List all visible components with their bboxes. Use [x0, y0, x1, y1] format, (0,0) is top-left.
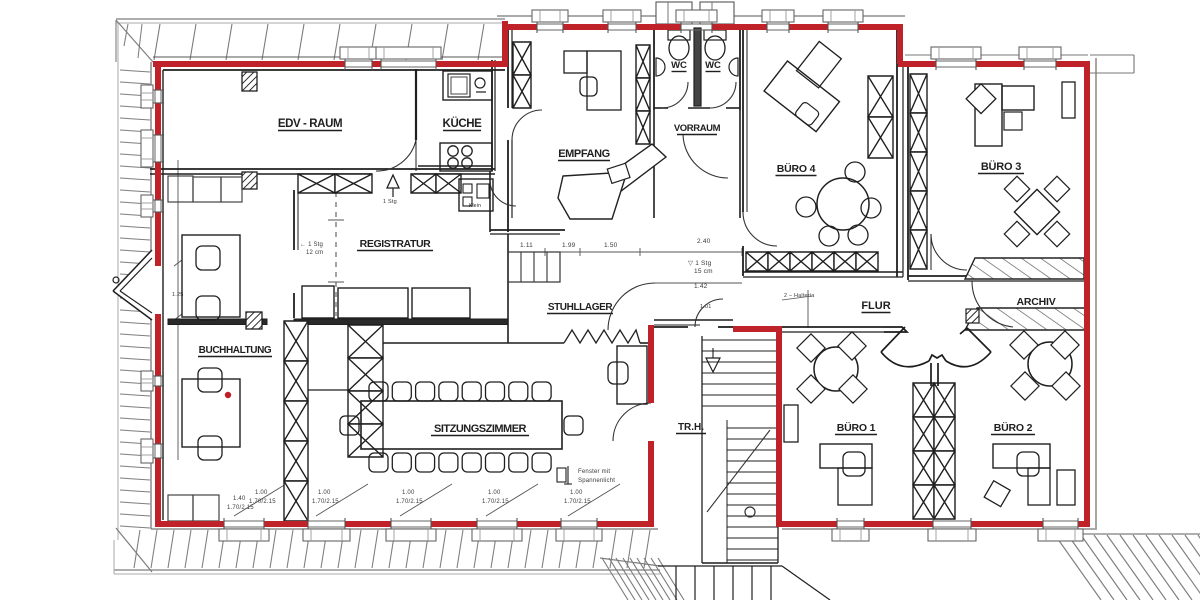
svg-text:1.99: 1.99: [562, 242, 576, 249]
svg-text:ARCHIV: ARCHIV: [1016, 296, 1055, 308]
svg-text:STUHLLAGER: STUHLLAGER: [548, 302, 614, 313]
svg-text:1.70/2.15: 1.70/2.15: [564, 499, 591, 505]
svg-text:1.70/2.15: 1.70/2.15: [227, 505, 254, 511]
svg-text:1.00: 1.00: [488, 490, 501, 496]
svg-text:BÜRO 1: BÜRO 1: [837, 421, 876, 434]
svg-text:KÜCHE: KÜCHE: [443, 117, 483, 130]
svg-text:Spannenlicht: Spannenlicht: [578, 478, 615, 484]
svg-text:← 1 Stg: ← 1 Stg: [300, 242, 323, 248]
svg-text:1.70/2.15: 1.70/2.15: [312, 499, 339, 505]
svg-text:SITZUNGSZIMMER: SITZUNGSZIMMER: [434, 423, 527, 435]
svg-text:1.40: 1.40: [233, 496, 246, 502]
svg-text:1 Stg: 1 Stg: [383, 199, 397, 205]
svg-text:1.70/2.15: 1.70/2.15: [396, 499, 423, 505]
svg-text:BUCHHALTUNG: BUCHHALTUNG: [199, 345, 272, 356]
svg-text:WC: WC: [671, 60, 687, 71]
svg-text:1.00: 1.00: [255, 490, 268, 496]
svg-text:1.42: 1.42: [694, 283, 708, 290]
svg-text:▽ 1 Stg: ▽ 1 Stg: [688, 260, 712, 267]
svg-text:EMPFANG: EMPFANG: [558, 148, 610, 160]
svg-text:FLUR: FLUR: [861, 300, 890, 312]
svg-text:Klein: Klein: [469, 203, 481, 209]
svg-text:EDV - RAUM: EDV - RAUM: [278, 118, 342, 130]
svg-text:BÜRO 2: BÜRO 2: [994, 421, 1033, 434]
svg-text:15 cm: 15 cm: [694, 268, 713, 275]
svg-text:Fenster mit: Fenster mit: [578, 469, 610, 475]
svg-text:WC: WC: [705, 60, 721, 71]
svg-text:1.50: 1.50: [604, 242, 618, 249]
svg-text:VORRAUM: VORRAUM: [674, 123, 721, 134]
svg-text:12 cm: 12 cm: [306, 250, 323, 256]
svg-text:BÜRO 3: BÜRO 3: [981, 160, 1021, 173]
svg-text:2.40: 2.40: [697, 238, 711, 245]
svg-text:BÜRO 4: BÜRO 4: [777, 162, 816, 175]
svg-text:REGISTRATUR: REGISTRATUR: [360, 238, 431, 250]
svg-text:1.11: 1.11: [520, 242, 533, 249]
svg-text:1.00: 1.00: [402, 490, 415, 496]
svg-text:1.00: 1.00: [318, 490, 331, 496]
svg-text:1.70/2.15: 1.70/2.15: [482, 499, 509, 505]
svg-text:TR.H.: TR.H.: [678, 422, 704, 433]
svg-text:1.00: 1.00: [570, 490, 583, 496]
